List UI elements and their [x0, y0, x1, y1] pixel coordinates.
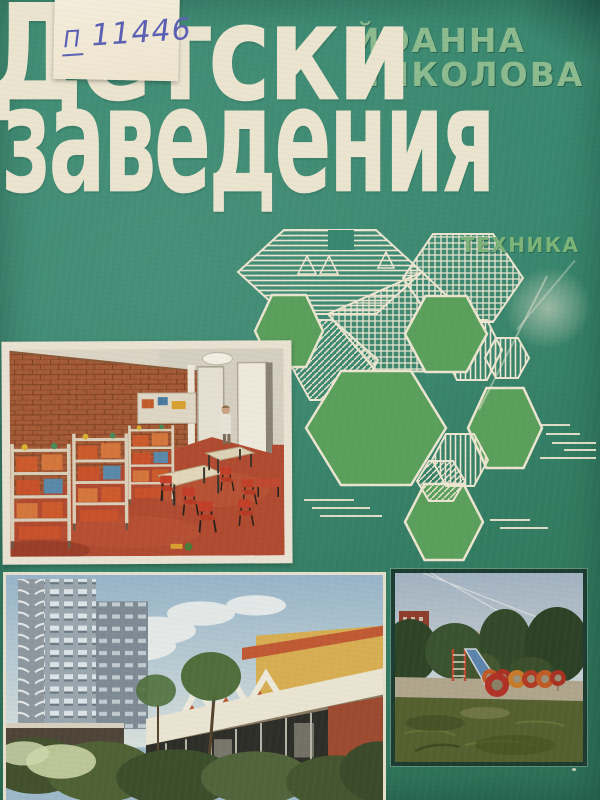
white-speck	[572, 768, 576, 771]
highrise-block	[44, 579, 96, 729]
playroom-interior-photo	[1, 340, 292, 565]
book-cover: Детски заведения ЙОАННА НИКОЛОВА ТЕХНИКА…	[0, 0, 600, 800]
kindergarten-building-photo	[3, 572, 386, 800]
playground-photo	[391, 569, 587, 766]
publisher-name: ТЕХНИКА	[461, 233, 580, 257]
call-number-digits: 11446	[90, 12, 193, 54]
call-number-prefix: П	[60, 26, 83, 56]
highrise-balconies	[18, 579, 44, 729]
library-call-number: П 11446	[60, 12, 193, 57]
book-title-line2: заведения	[2, 67, 493, 215]
playroom-interior-art	[9, 348, 284, 556]
building-exterior-art	[6, 575, 383, 800]
playground-art	[395, 573, 583, 762]
library-sticker: П 11446	[53, 0, 180, 81]
